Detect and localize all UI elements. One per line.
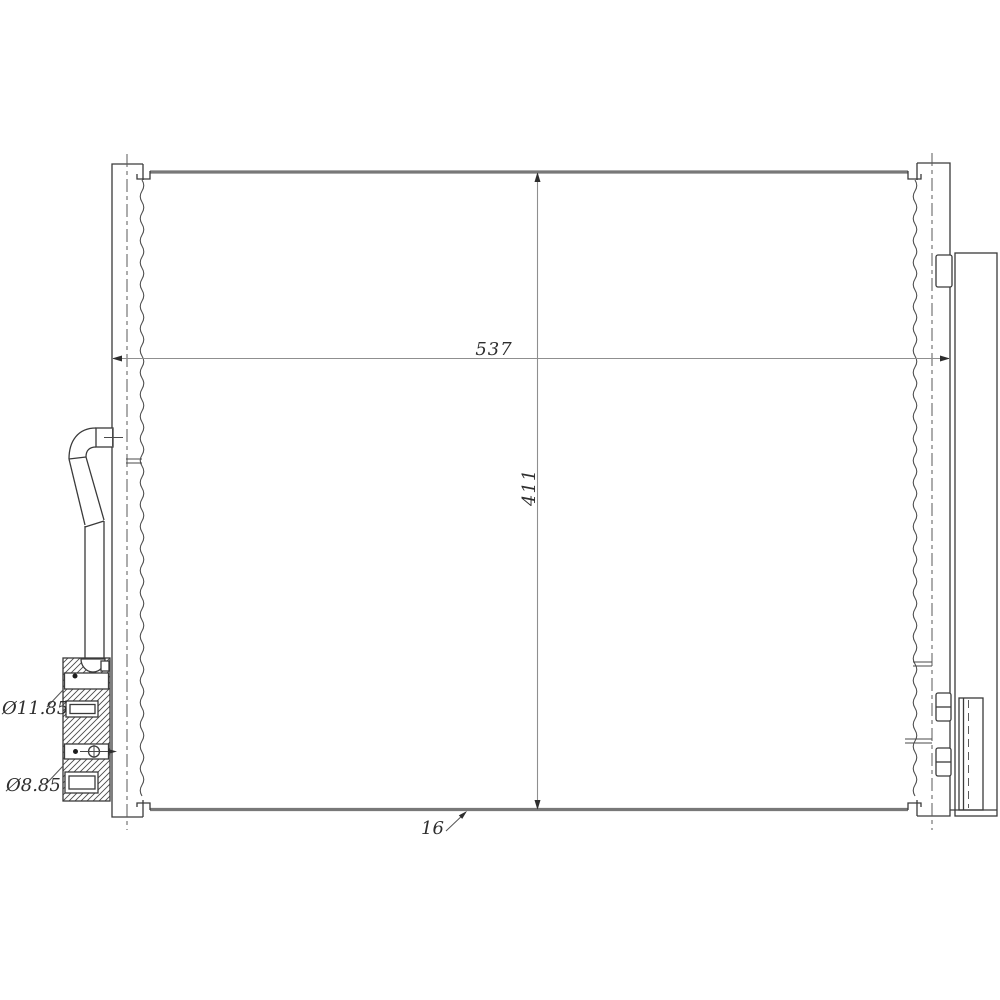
left-tank xyxy=(112,154,144,830)
mounting-bracket-top xyxy=(936,255,952,287)
right-tank-baffle-mark-lower xyxy=(905,739,932,743)
depth-leader: 16 xyxy=(421,811,467,839)
mounting-bracket-mid xyxy=(936,693,951,721)
upper-port-leader: Ø11.85 xyxy=(1,690,68,719)
upper-port xyxy=(66,701,98,717)
width-dimension: 537 xyxy=(112,339,950,362)
depth-label: 16 xyxy=(421,818,444,839)
height-dimension-label: 411 xyxy=(519,469,540,507)
lower-port xyxy=(65,772,98,793)
core-bottom-edge xyxy=(137,803,921,810)
lower-port-label: Ø8.85 xyxy=(5,775,61,796)
lower-port-leader: Ø8.85 xyxy=(5,766,63,796)
upper-port-label: Ø11.85 xyxy=(1,698,68,719)
port-block xyxy=(63,658,117,801)
height-dimension: 411 xyxy=(519,172,541,810)
width-dimension-label: 537 xyxy=(475,339,512,360)
inlet-pipe xyxy=(69,428,123,658)
right-core-seam xyxy=(913,180,917,796)
condenser-technical-drawing: 537 411 16 Ø11.85 Ø8.85 xyxy=(0,0,1000,1000)
core-top-edge xyxy=(137,171,921,179)
drawing-canvas: 537 411 16 Ø11.85 Ø8.85 xyxy=(0,0,1000,1000)
left-tank-baffle-mark xyxy=(126,459,142,463)
left-core-seam xyxy=(140,180,144,796)
mounting-bracket-bottom xyxy=(936,748,951,776)
